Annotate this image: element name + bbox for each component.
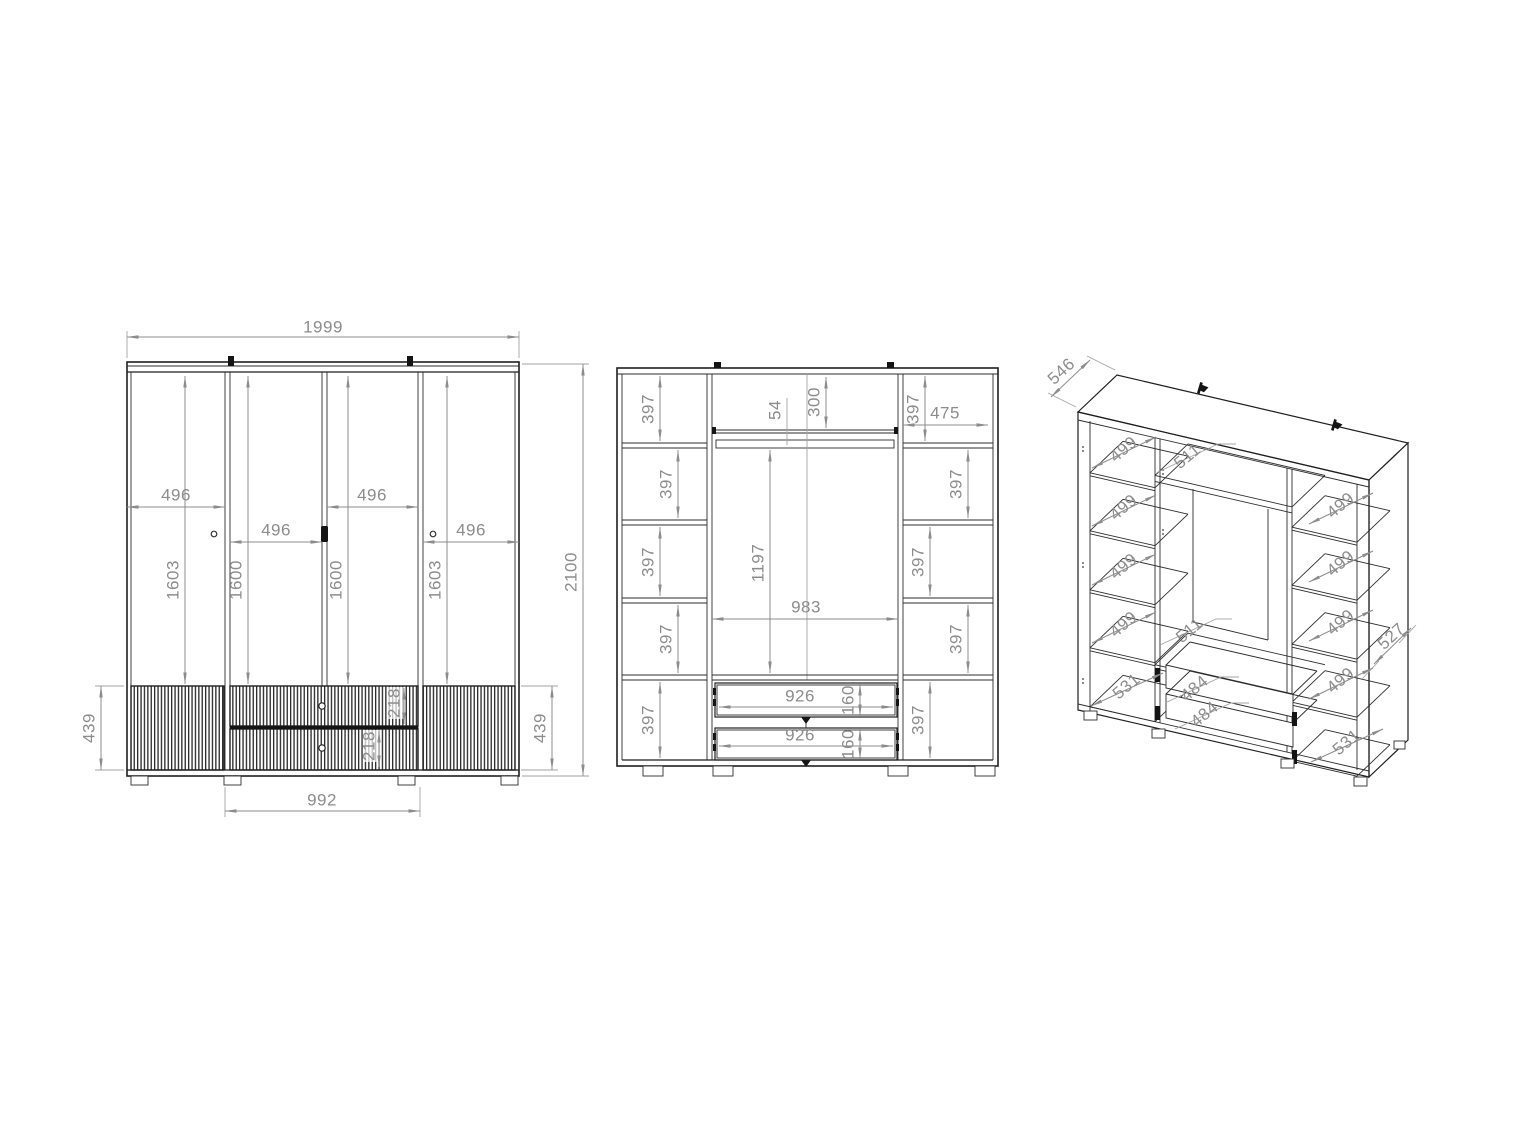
- dim-top-section-height: 300: [804, 387, 823, 417]
- dim-right-shelf-2: 499: [1323, 546, 1358, 580]
- dim-left-bottom-depth: 531: [1109, 669, 1144, 703]
- dim-left-shelf-4: 499: [1106, 607, 1141, 641]
- dim-right-cell-2: 397: [946, 469, 965, 499]
- foot: [888, 766, 908, 776]
- foot: [224, 776, 241, 785]
- dim-base-height-right: 439: [530, 713, 549, 743]
- dim-base-height-left: 439: [79, 713, 98, 743]
- dim-drawer1-width: 926: [785, 686, 815, 705]
- dim-drawer-front-height-2: 218: [359, 731, 378, 761]
- right-side-panel: [1369, 443, 1408, 777]
- dim-left-shelf-3: 499: [1106, 549, 1141, 583]
- dim-right-cell-3: 397: [908, 547, 927, 577]
- dim-door-width-2: 496: [261, 520, 291, 539]
- dim-door-height-4: 1603: [425, 560, 444, 600]
- dim-door-height-1: 1603: [163, 560, 182, 600]
- dim-left-shelf-1: 499: [1106, 432, 1141, 466]
- dim-right-cell-4: 397: [946, 624, 965, 654]
- perspective-view: 546 527 499 499 499 499 531 499 499 499 …: [1044, 354, 1416, 786]
- foot: [131, 776, 148, 785]
- dim-door-width-3: 496: [357, 485, 387, 504]
- internal-view: 397 397 397 397 397 397 397 397 397 397 …: [617, 362, 998, 776]
- dim-right-shelf-1: 499: [1323, 488, 1358, 522]
- hanging-rail: [716, 440, 894, 448]
- foot: [1281, 759, 1294, 768]
- dim-door-height-2: 1600: [226, 560, 245, 600]
- foot: [1394, 741, 1405, 749]
- dim-right-cell-5: 397: [908, 705, 927, 735]
- foot: [398, 776, 415, 785]
- dim-overall-height: 2100: [561, 552, 580, 592]
- dim-door-width-1: 496: [161, 485, 191, 504]
- dim-left-cell-3: 397: [638, 547, 657, 577]
- dim-drawer2-height: 160: [838, 729, 857, 759]
- center-structure: [1155, 444, 1325, 700]
- dim-door-height-3: 1600: [326, 560, 345, 600]
- wall-bracket-icon: [407, 356, 413, 366]
- dim-drawer-front-height-1: 218: [384, 688, 403, 718]
- wall-bracket-icon: [228, 356, 234, 366]
- dim-top-depth: 546: [1044, 354, 1079, 388]
- foot: [1152, 729, 1165, 738]
- dim-right-shelf-3: 499: [1323, 605, 1358, 639]
- dim-left-shelf-2: 499: [1106, 490, 1141, 524]
- foot: [975, 766, 995, 776]
- dim-left-cell-4: 397: [656, 624, 675, 654]
- dim-right-shelf-4: 499: [1323, 663, 1358, 697]
- foot: [1354, 777, 1367, 786]
- drawer-pull-hole: [319, 703, 325, 709]
- dim-center-width: 983: [791, 597, 821, 616]
- drawer-slide: [1292, 712, 1297, 726]
- drawer-pull-hole: [319, 745, 325, 751]
- dim-drawer2-width: 926: [785, 725, 815, 744]
- center-door-handle: [321, 526, 328, 542]
- wall-bracket-icon: [887, 362, 894, 368]
- dim-hanging-height: 1197: [748, 544, 767, 583]
- front-view: 1999 2100 1603 1600 1600 1603 496 496 49…: [79, 317, 589, 817]
- dim-right-cell-1: 397: [903, 394, 922, 424]
- foot: [643, 766, 663, 776]
- foot: [1084, 711, 1097, 720]
- wardrobe-dimension-drawing: 1999 2100 1603 1600 1600 1603 496 496 49…: [0, 0, 1517, 1137]
- fluted-panel-left: [131, 686, 224, 770]
- dim-door-width-4: 496: [456, 520, 486, 539]
- dim-rail-offset: 54: [765, 400, 784, 420]
- dim-left-cell-1: 397: [638, 394, 657, 424]
- dim-drawer1-height: 160: [838, 685, 857, 715]
- dim-right-top-width: 475: [930, 403, 960, 422]
- door-handle-hole: [430, 531, 436, 537]
- foot: [501, 776, 518, 785]
- foot: [713, 766, 733, 776]
- dim-right-bottom-depth: 531: [1329, 725, 1364, 759]
- fluted-panel-right: [423, 686, 515, 770]
- dim-left-cell-2: 397: [656, 469, 675, 499]
- drawer-slide: [1155, 706, 1160, 720]
- dim-left-cell-5: 397: [638, 705, 657, 735]
- wall-bracket-icon: [714, 362, 721, 368]
- technical-drawing-page: 1999 2100 1603 1600 1600 1603 496 496 49…: [0, 0, 1517, 1137]
- dim-overall-width: 1999: [303, 317, 343, 336]
- door-handle-hole: [211, 531, 217, 537]
- top-panel: [1078, 375, 1408, 480]
- dim-drawer-unit-width: 992: [307, 790, 337, 809]
